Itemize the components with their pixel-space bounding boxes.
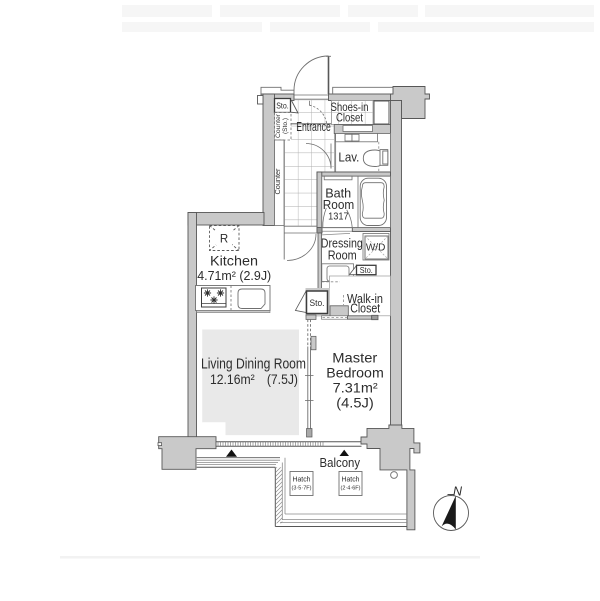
svg-text:W/D: W/D <box>366 242 386 254</box>
svg-text:Hatch: Hatch <box>342 475 360 484</box>
svg-text:Master: Master <box>332 350 378 365</box>
svg-text:R: R <box>220 234 228 246</box>
svg-text:Entrance: Entrance <box>296 120 331 134</box>
svg-text:Counter: Counter <box>275 113 282 138</box>
svg-text:Living Dining Room: Living Dining Room <box>201 356 306 372</box>
svg-text:Lav.: Lav. <box>338 150 359 165</box>
svg-text:Balcony: Balcony <box>320 455 361 470</box>
svg-text:7.31m²: 7.31m² <box>333 380 379 395</box>
svg-text:12.16m² (7.5J): 12.16m² (7.5J) <box>210 372 298 387</box>
svg-text:(2·4·6F): (2·4·6F) <box>341 486 361 492</box>
svg-text:N: N <box>453 485 463 499</box>
svg-text:Sto.: Sto. <box>276 102 289 111</box>
svg-text:Room: Room <box>328 247 357 262</box>
svg-text:Closet: Closet <box>350 302 380 316</box>
svg-text:(4.5J): (4.5J) <box>336 395 374 410</box>
svg-text:Closet: Closet <box>336 110 364 124</box>
svg-text:Kitchen: Kitchen <box>210 254 258 269</box>
svg-text:Sto.: Sto. <box>360 266 373 275</box>
svg-text:Bedroom: Bedroom <box>326 365 384 380</box>
svg-text:1317: 1317 <box>328 210 349 222</box>
svg-text:(Sto.): (Sto.) <box>282 118 289 134</box>
svg-text:(3·5·7F): (3·5·7F) <box>292 486 312 492</box>
svg-text:Sto.: Sto. <box>310 298 325 308</box>
svg-text:Counter: Counter <box>273 168 282 194</box>
svg-text:Hatch: Hatch <box>293 475 311 484</box>
svg-text:4.71m² (2.9J): 4.71m² (2.9J) <box>197 268 271 283</box>
